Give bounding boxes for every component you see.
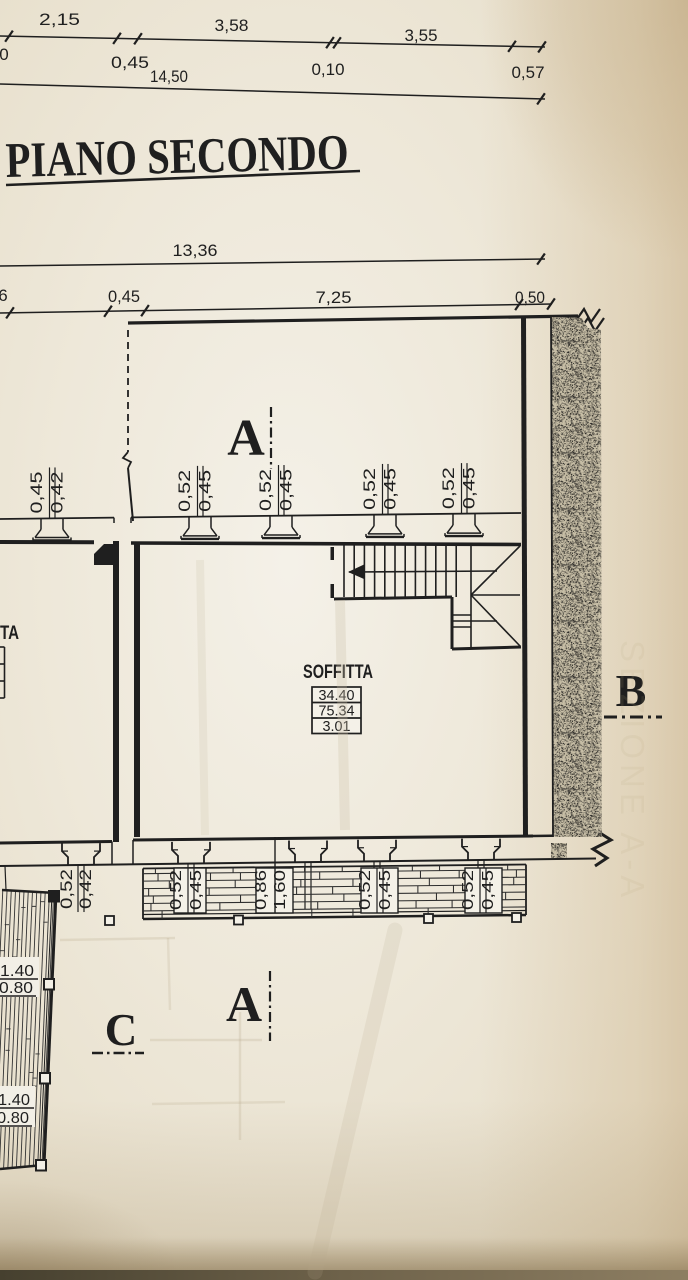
svg-text:75.34: 75.34 [319,704,355,720]
svg-text:0,10: 0,10 [312,60,345,79]
svg-text:0,45: 0,45 [278,469,296,511]
svg-text:0,45: 0,45 [377,870,394,910]
svg-text:0.80: 0.80 [0,1110,29,1127]
svg-text:3,55: 3,55 [405,26,438,45]
svg-text:7,25: 7,25 [316,288,352,307]
svg-text:6: 6 [0,286,8,305]
svg-text:0.80: 0.80 [0,980,33,997]
svg-text:0,45: 0,45 [461,467,479,509]
svg-text:0,52: 0,52 [361,468,379,510]
svg-text:SEZIONE A-A: SEZIONE A-A [614,640,651,902]
svg-text:1,60: 1,60 [272,870,289,910]
svg-text:A: A [226,976,262,1032]
svg-text:0,45: 0,45 [28,471,46,513]
svg-text:3,58: 3,58 [215,16,249,35]
svg-text:0,52: 0,52 [460,870,477,910]
svg-text:13,36: 13,36 [173,241,218,260]
svg-text:2,15: 2,15 [39,10,80,29]
svg-text:0,50: 0,50 [515,288,545,307]
svg-text:0,57: 0,57 [512,63,545,82]
svg-text:1.40: 1.40 [0,1092,30,1109]
svg-text:0,52: 0,52 [440,467,458,509]
svg-text:0,52: 0,52 [176,470,194,512]
svg-text:0,45: 0,45 [382,468,400,510]
svg-text:0,52: 0,52 [257,469,275,511]
svg-text:0,42: 0,42 [77,869,95,909]
svg-text:0,86: 0,86 [253,870,270,910]
svg-text:TA: TA [0,623,19,644]
svg-text:1.40: 1.40 [0,963,34,980]
svg-text:0,45: 0,45 [188,870,205,910]
svg-text:0,42: 0,42 [49,471,67,513]
svg-text:0,52: 0,52 [357,870,374,910]
svg-text:0,45: 0,45 [111,53,149,72]
svg-text:0,45: 0,45 [197,470,215,512]
svg-text:0: 0 [0,45,9,64]
svg-text:0,52: 0,52 [168,870,185,910]
svg-text:A: A [227,410,265,467]
svg-text:14,50: 14,50 [150,67,188,86]
svg-text:C: C [105,1005,138,1055]
svg-text:0,52: 0,52 [58,869,76,909]
svg-text:0,45: 0,45 [480,870,497,910]
svg-text:0,45: 0,45 [108,287,140,306]
svg-text:34.40: 34.40 [319,688,355,704]
